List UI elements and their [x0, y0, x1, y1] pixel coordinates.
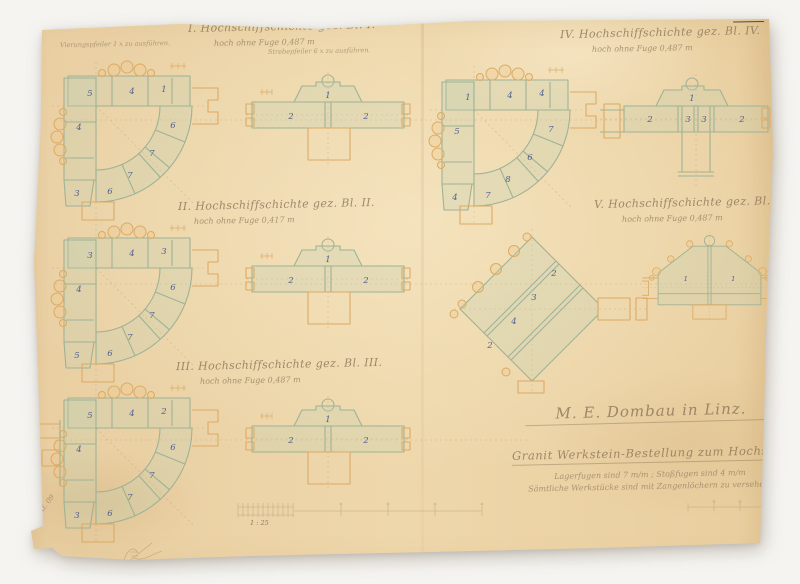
stone-number: 1: [161, 85, 166, 95]
stone-number: 4: [75, 123, 81, 133]
edge-fragment: [26, 420, 66, 490]
stone-number: 3: [74, 189, 79, 199]
archive-stamp: XXII 980: [733, 9, 792, 21]
stone-number: 7: [127, 493, 133, 503]
stone-number: 3: [531, 293, 536, 303]
stone-number: 2: [550, 269, 556, 279]
stone-number: 1: [731, 275, 735, 283]
stone-number: 1: [684, 275, 688, 283]
stone-number: 2: [738, 115, 744, 125]
stone-number: 1: [325, 255, 330, 265]
stone-number: 7: [548, 125, 554, 135]
stone-number: 8: [505, 175, 511, 185]
plan-wall-course-2: 1 2 2: [246, 236, 411, 331]
stone-number: 4: [75, 445, 81, 455]
stone-number: 2: [362, 112, 368, 122]
stone-number: 2: [287, 436, 293, 446]
stone-number: 5: [87, 411, 92, 421]
stone-number: 5: [74, 351, 79, 361]
stone-number: 4: [128, 249, 134, 259]
stone-number: 2: [160, 407, 166, 417]
plan-wall-course-3: 1 2 2: [246, 396, 411, 491]
stone-number: 3: [701, 115, 706, 125]
stone-number: 4: [506, 91, 512, 101]
plan-pier-course-5-octagon: 2 3 4 2: [432, 224, 647, 394]
stone-number: 7: [127, 171, 133, 181]
stone-number: 6: [527, 153, 533, 163]
stone-number: 2: [362, 436, 368, 446]
scale-label: 1 : 25: [250, 519, 269, 527]
stone-number: 2: [287, 112, 293, 122]
stone-number: 1: [325, 415, 330, 425]
stone-number: 7: [149, 471, 155, 481]
stone-number: 6: [107, 187, 113, 197]
stone-number: 5: [454, 127, 459, 137]
subtitle-course-4: hoch ohne Fuge 0,487 m: [592, 43, 693, 54]
stone-number: 6: [170, 443, 176, 453]
stone-number: 1: [325, 91, 330, 101]
stone-number: 6: [107, 349, 113, 359]
paper-crease: [421, 22, 424, 554]
stone-number: 6: [107, 509, 113, 519]
stone-number: 4: [538, 89, 544, 99]
stone-number: 6: [170, 121, 176, 131]
stone-number: 3: [685, 115, 690, 125]
plan-wall-course-1: 1 2 2: [246, 72, 411, 167]
subtitle-course-1: hoch ohne Fuge 0,487 m: [214, 37, 315, 48]
stone-number: 6: [170, 283, 176, 293]
stone-number: 7: [149, 311, 155, 321]
plan-wall-course-4: 1 2 3 3 2: [600, 74, 770, 186]
paper-shadow: XXII 980 I. Hochschiffschichte gez. Bl. …: [0, 0, 800, 584]
stone-number: 4: [75, 285, 81, 295]
stone-number: 7: [149, 149, 155, 159]
stone-number: 7: [127, 333, 133, 343]
plan-pier-course-3: 5 4 2 4 3 6 7 7 6: [52, 384, 237, 544]
stone-number: 2: [362, 276, 368, 286]
stone-number: 3: [74, 511, 79, 521]
stone-number: 2: [486, 341, 492, 351]
stone-number: 4: [510, 317, 516, 327]
stone-number: 2: [287, 276, 293, 286]
plan-wall-course-5-trapezoid: 1 1: [642, 232, 777, 323]
stone-number: 2: [646, 115, 652, 125]
stone-number: 4: [451, 193, 457, 203]
stone-number: 4: [128, 409, 134, 419]
stone-number: 4: [128, 87, 134, 97]
plan-pier-course-1: 5 4 1 4 3 6 7 7 6: [52, 62, 237, 222]
stone-number: 3: [161, 247, 166, 257]
stone-number: 1: [465, 93, 470, 103]
stone-number: 3: [87, 251, 92, 261]
stamp-number: 980: [772, 10, 792, 20]
stamp-roman: XXII: [733, 10, 764, 23]
drawing-sheet: XXII 980 I. Hochschiffschichte gez. Bl. …: [0, 0, 800, 584]
scale-bar: 1 : 25: [236, 497, 486, 527]
subtitle-course-5: hoch ohne Fuge 0,487 m: [622, 213, 723, 224]
scale-bar-small: [688, 500, 768, 514]
stone-number: 7: [485, 191, 491, 201]
plan-pier-course-4: 1 4 4 5 4 7 6 8 7: [430, 66, 615, 226]
stone-number: 5: [87, 89, 92, 99]
photo-background: XXII 980 I. Hochschiffschichte gez. Bl. …: [0, 0, 800, 584]
signature-scribble: [118, 538, 170, 568]
stone-number: 1: [689, 94, 694, 104]
